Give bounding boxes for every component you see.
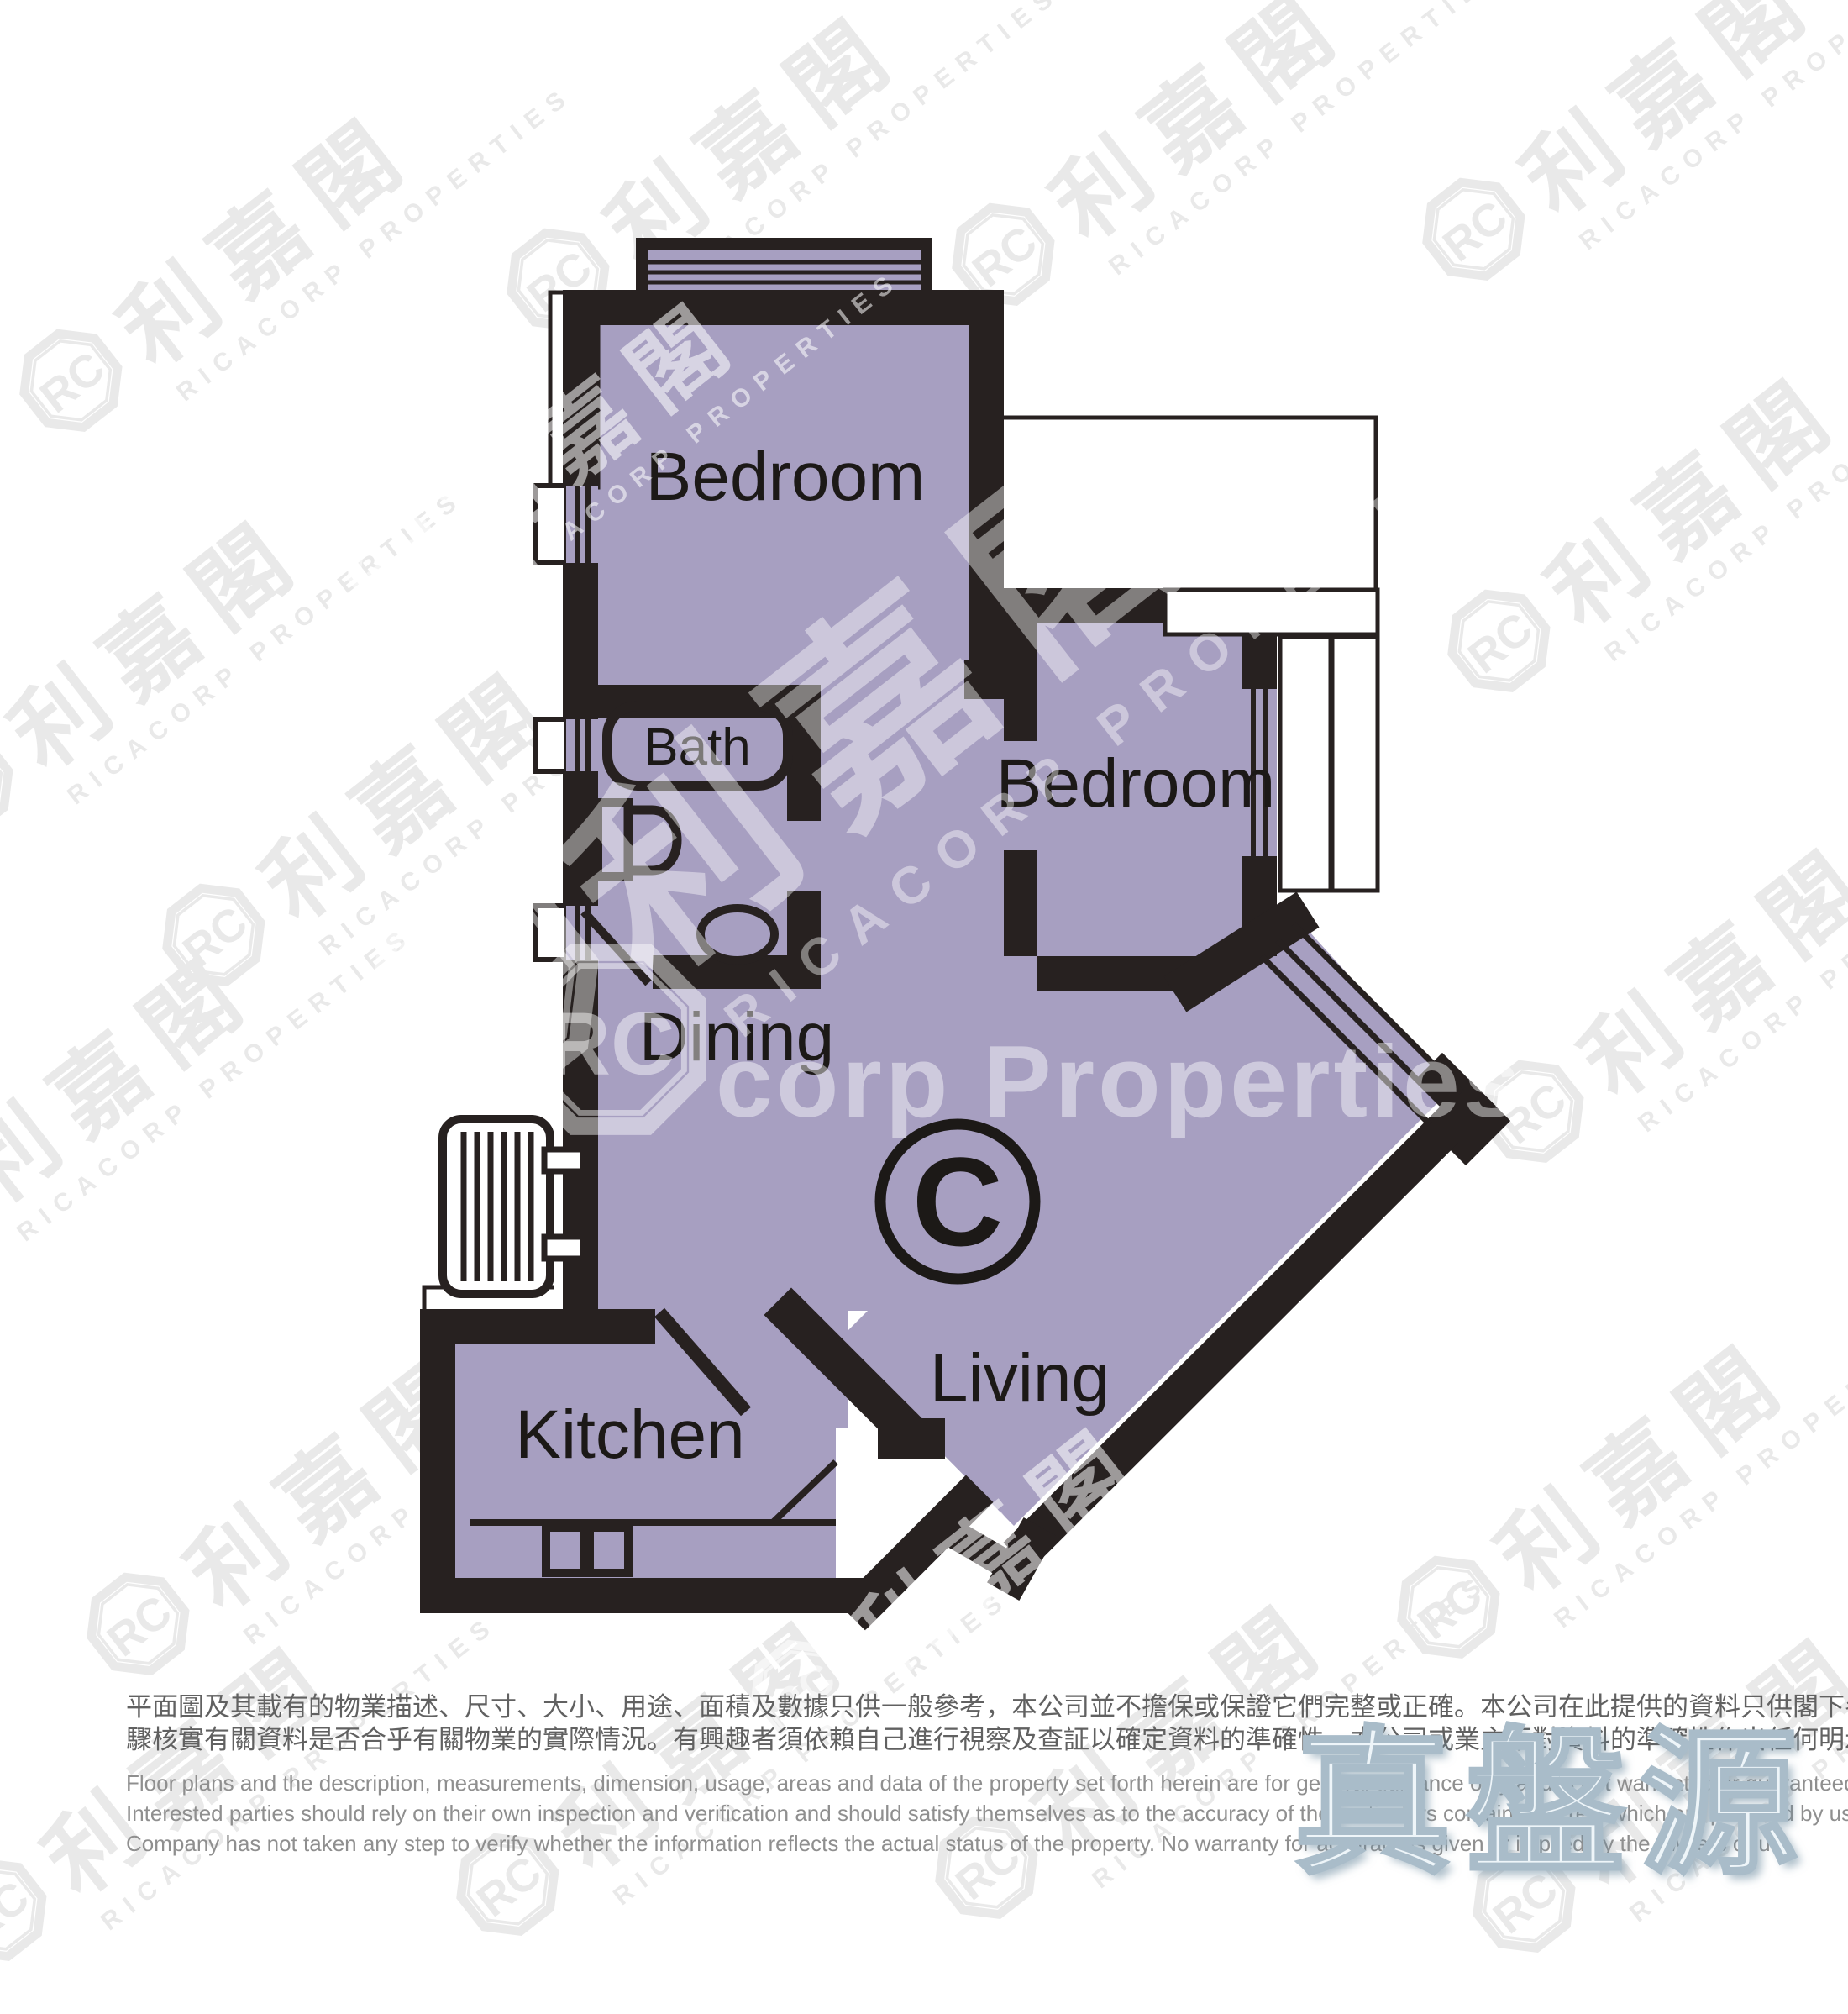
bay-right-strip-inner <box>1280 637 1331 891</box>
washbasin <box>701 908 774 960</box>
label-bedroom-right: Bedroom <box>996 745 1276 822</box>
svg-text:RC: RC <box>0 1870 38 1951</box>
label-unit: C <box>912 1131 1003 1272</box>
window-left-2 <box>536 719 598 771</box>
toilet-bowl <box>628 810 677 870</box>
ac-radiator-unit <box>443 1119 583 1294</box>
label-dining: Dining <box>639 999 834 1075</box>
label-kitchen: Kitchen <box>515 1396 745 1473</box>
floor-plan: Bedroom Bedroom Bath Dining Kitchen Livi… <box>0 0 1848 1848</box>
bay-right-top-frame <box>1165 590 1378 634</box>
page: Bedroom Bedroom Bath Dining Kitchen Livi… <box>0 0 1848 1848</box>
label-bedroom-top: Bedroom <box>646 439 926 515</box>
verified-property-logo: 真盤源 <box>1294 1676 1813 1905</box>
ricacorp-octagon-icon: RC <box>0 1840 65 1980</box>
bay-right-strip-outer <box>1332 637 1378 891</box>
label-living: Living <box>930 1340 1110 1417</box>
window-left-1 <box>536 486 598 563</box>
label-bath: Bath <box>643 718 751 776</box>
